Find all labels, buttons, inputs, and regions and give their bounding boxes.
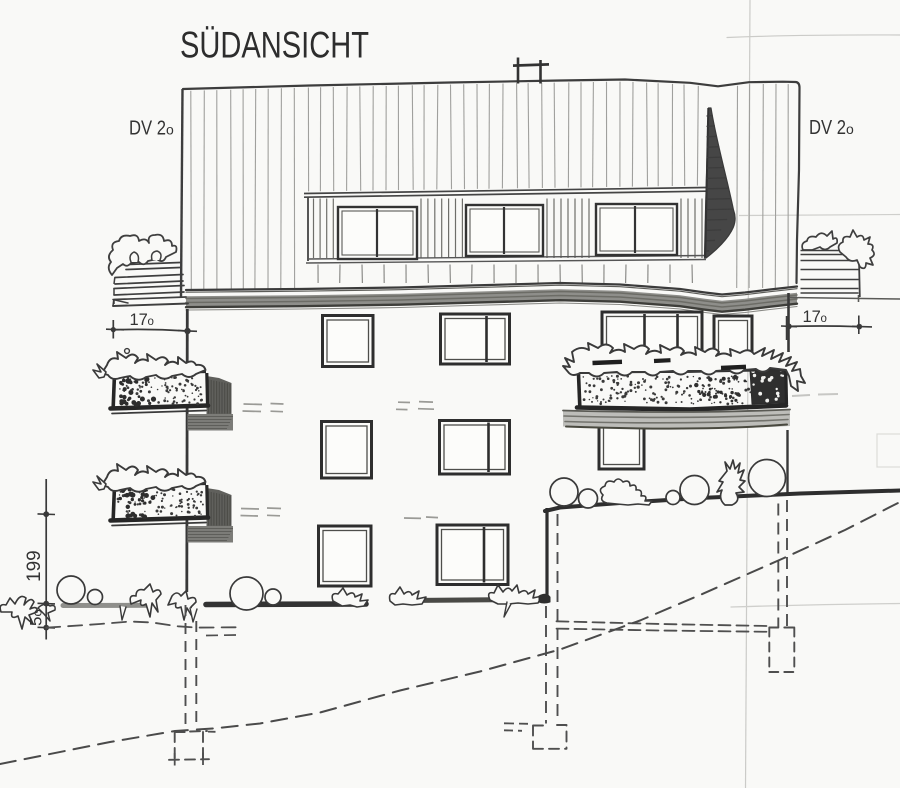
svg-text:o: o	[846, 121, 854, 137]
svg-text:o: o	[166, 122, 174, 138]
svg-text:199: 199	[24, 550, 45, 582]
svg-text:17: 17	[130, 311, 148, 329]
svg-text:o: o	[821, 313, 827, 325]
svg-text:17: 17	[803, 308, 821, 326]
svg-text:5o: 5o	[27, 609, 46, 626]
svg-text:o: o	[148, 316, 154, 328]
svg-text:SÜDANSICHT: SÜDANSICHT	[180, 25, 369, 66]
svg-text:DV 2: DV 2	[809, 116, 846, 139]
svg-text:DV 2: DV 2	[129, 117, 166, 140]
